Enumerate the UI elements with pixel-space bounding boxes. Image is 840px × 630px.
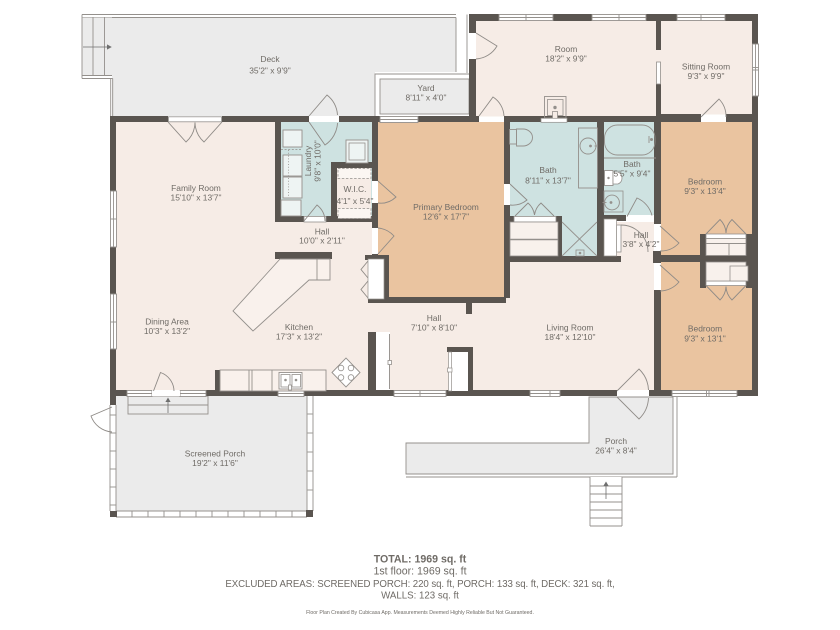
svg-text:Screened Porch: Screened Porch [185, 449, 246, 459]
svg-text:WALLS: 123 sq. ft: WALLS: 123 sq. ft [381, 591, 459, 602]
svg-text:15'10" x 13'7": 15'10" x 13'7" [171, 193, 222, 203]
svg-text:17'3" x 13'2": 17'3" x 13'2" [276, 332, 322, 342]
svg-text:Yard: Yard [417, 83, 435, 93]
svg-text:Bedroom: Bedroom [688, 324, 722, 334]
svg-text:Room: Room [555, 44, 578, 54]
svg-text:1st floor: 1969 sq. ft: 1st floor: 1969 sq. ft [373, 566, 466, 578]
svg-text:35'2" x 9'9": 35'2" x 9'9" [249, 66, 291, 76]
svg-text:8'11" x 4'0": 8'11" x 4'0" [406, 93, 447, 103]
svg-text:Kitchen: Kitchen [285, 322, 313, 332]
svg-text:3'8" x 4'2": 3'8" x 4'2" [623, 239, 660, 249]
svg-text:18'4" x 12'10": 18'4" x 12'10" [545, 332, 596, 342]
svg-text:Family Room: Family Room [171, 183, 221, 193]
svg-text:Deck: Deck [260, 54, 280, 64]
svg-text:9'3" x 13'1": 9'3" x 13'1" [684, 334, 726, 344]
svg-text:Floor Plan Created By Cubicasa: Floor Plan Created By Cubicasa App. Meas… [306, 610, 534, 616]
svg-text:TOTAL: 1969 sq. ft: TOTAL: 1969 sq. ft [374, 554, 467, 566]
svg-text:9'8" x 10'0": 9'8" x 10'0" [313, 140, 323, 182]
svg-text:Bedroom: Bedroom [688, 177, 722, 187]
svg-text:Bath: Bath [623, 159, 641, 169]
svg-text:7'10" x 8'10": 7'10" x 8'10" [411, 323, 457, 333]
svg-text:8'11" x 13'7": 8'11" x 13'7" [525, 176, 571, 186]
svg-text:Porch: Porch [605, 436, 627, 446]
svg-text:12'6" x 17'7": 12'6" x 17'7" [423, 212, 469, 222]
svg-text:Living Room: Living Room [547, 323, 594, 333]
svg-text:Dining Area: Dining Area [145, 317, 189, 327]
svg-text:26'4" x 8'4": 26'4" x 8'4" [595, 446, 637, 456]
svg-text:Laundry: Laundry [303, 145, 313, 176]
svg-text:9'3" x 13'4": 9'3" x 13'4" [684, 186, 726, 196]
svg-text:5'5" x 9'4": 5'5" x 9'4" [614, 169, 651, 179]
svg-text:Primary Bedroom: Primary Bedroom [413, 202, 479, 212]
svg-text:Sitting Room: Sitting Room [682, 62, 730, 72]
svg-text:4'1" x 5'4": 4'1" x 5'4" [337, 196, 374, 206]
svg-text:Hall: Hall [427, 313, 442, 323]
svg-text:EXCLUDED AREAS: SCREENED PORCH: EXCLUDED AREAS: SCREENED PORCH: 220 sq. … [225, 579, 614, 590]
svg-text:10'3" x 13'2": 10'3" x 13'2" [144, 326, 190, 336]
svg-text:18'2" x 9'9": 18'2" x 9'9" [545, 54, 587, 64]
svg-text:19'2" x 11'6": 19'2" x 11'6" [192, 458, 238, 468]
svg-text:W.I.C.: W.I.C. [344, 184, 367, 194]
svg-text:9'3" x 9'9": 9'3" x 9'9" [688, 71, 725, 81]
svg-text:Bath: Bath [539, 165, 557, 175]
svg-text:10'0" x 2'11": 10'0" x 2'11" [299, 236, 345, 246]
